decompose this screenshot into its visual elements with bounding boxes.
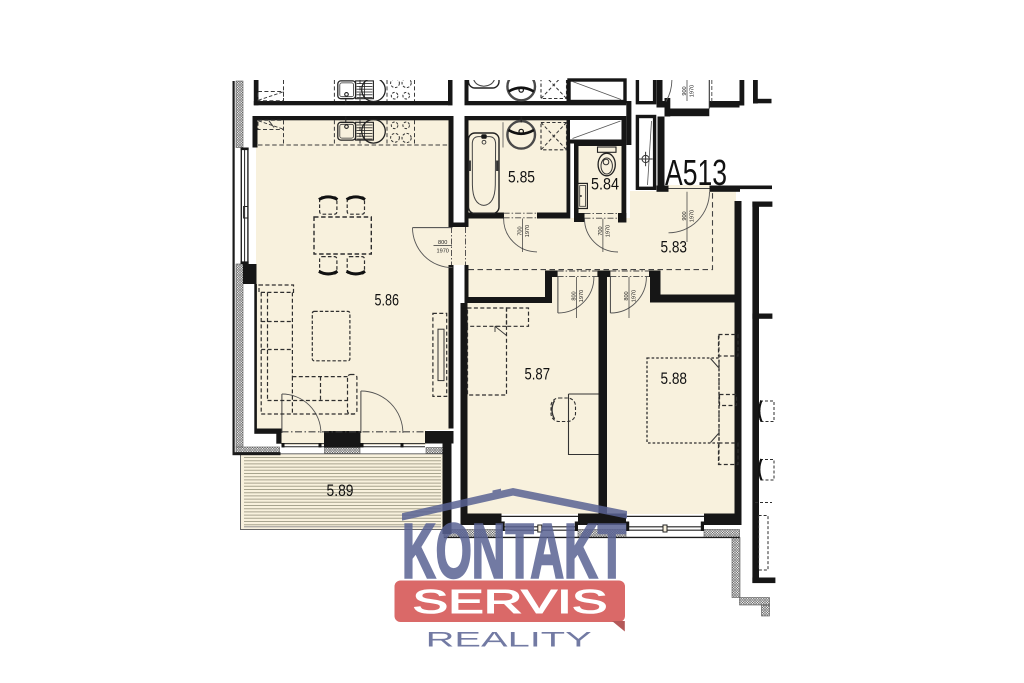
svg-text:700: 700 <box>598 226 604 235</box>
svg-text:5.85: 5.85 <box>508 169 535 187</box>
svg-text:5.84: 5.84 <box>591 176 619 194</box>
svg-text:1970: 1970 <box>690 210 696 222</box>
svg-text:800: 800 <box>624 291 630 300</box>
svg-text:5.83: 5.83 <box>661 239 688 257</box>
svg-text:800: 800 <box>438 240 447 246</box>
svg-text:1970: 1970 <box>690 85 696 97</box>
svg-text:SERVIS: SERVIS <box>413 583 608 620</box>
svg-text:700: 700 <box>518 226 524 235</box>
svg-text:5.89: 5.89 <box>327 482 354 500</box>
svg-text:A513: A513 <box>665 152 727 193</box>
svg-text:5.86: 5.86 <box>375 292 400 310</box>
svg-text:REALITY: REALITY <box>426 629 592 652</box>
svg-text:1970: 1970 <box>632 290 638 302</box>
svg-text:5.88: 5.88 <box>661 370 688 388</box>
svg-text:1970: 1970 <box>579 290 585 302</box>
svg-text:1970: 1970 <box>605 225 611 237</box>
svg-text:5.87: 5.87 <box>525 366 551 384</box>
svg-text:800: 800 <box>572 291 578 300</box>
svg-text:900: 900 <box>682 86 688 95</box>
svg-text:900: 900 <box>682 211 688 220</box>
svg-text:1970: 1970 <box>525 225 531 237</box>
svg-text:1970: 1970 <box>436 248 448 254</box>
